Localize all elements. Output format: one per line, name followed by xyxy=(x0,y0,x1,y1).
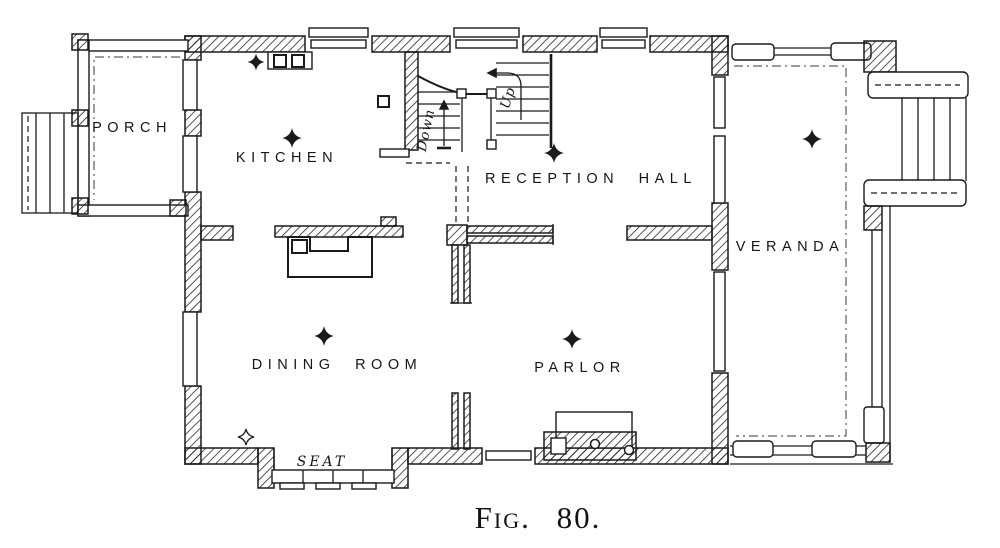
veranda: VERANDA xyxy=(730,41,968,464)
window xyxy=(486,451,531,460)
cased-opening-walls xyxy=(450,166,472,449)
wall-stub xyxy=(627,226,712,240)
newel-post xyxy=(457,89,466,98)
newel-post xyxy=(487,140,496,149)
veranda-post xyxy=(812,441,856,457)
firebox xyxy=(551,438,566,454)
window xyxy=(183,60,197,110)
room-label-kitchen: KITCHEN xyxy=(236,150,338,166)
bay-sill xyxy=(280,483,304,489)
fireplace xyxy=(544,412,636,460)
newel-light-icon xyxy=(544,143,564,163)
porch-steps xyxy=(22,113,78,213)
ceiling-light-icon xyxy=(282,128,302,148)
wall-left xyxy=(185,110,201,136)
ceiling-light-icon xyxy=(248,54,265,71)
wall-stub xyxy=(201,226,233,240)
veranda-door xyxy=(714,136,725,203)
room-label-veranda: VERANDA xyxy=(736,239,845,255)
wall-bottom xyxy=(185,448,258,464)
door-leaf xyxy=(380,149,409,157)
floor-plan-drawing: PORCH VERANDA xyxy=(0,0,1000,548)
stair-balustrade xyxy=(457,89,496,152)
interior-walls xyxy=(201,52,712,449)
window xyxy=(714,272,725,371)
figure-caption: Fig. 80. xyxy=(475,500,602,535)
wall-reception-parlor xyxy=(447,224,553,245)
room-label-porch: PORCH xyxy=(92,120,172,136)
sideboard xyxy=(275,217,403,277)
wall-top xyxy=(185,36,305,52)
figure-80-floor-plan: PORCH VERANDA xyxy=(0,0,1000,548)
wall-right xyxy=(712,36,728,75)
porch-post xyxy=(72,198,88,214)
porch-rail-left xyxy=(78,40,89,216)
fireplace-fixture xyxy=(591,440,600,449)
veranda-corner xyxy=(864,41,896,72)
veranda-corner xyxy=(866,443,890,462)
room-label-reception-hall: RECEPTION HALL xyxy=(485,171,697,187)
ceiling-light-icon xyxy=(802,129,822,149)
veranda-rail-block xyxy=(864,206,882,230)
veranda-steps xyxy=(864,72,968,206)
wall-bottom xyxy=(408,448,482,464)
wall-right xyxy=(712,203,728,270)
bay-sill xyxy=(316,483,340,489)
veranda-post xyxy=(732,44,774,60)
wall-top xyxy=(372,36,450,52)
window xyxy=(600,28,647,48)
kitchen-chimney xyxy=(268,52,312,69)
window xyxy=(309,28,368,48)
wall-light-icon xyxy=(238,429,254,445)
room-label-dining-room: DINING ROOM xyxy=(252,357,422,373)
staircase: Down Up xyxy=(414,54,564,163)
veranda-post xyxy=(733,441,773,457)
ceiling-light-icon xyxy=(562,329,582,349)
window xyxy=(183,312,197,386)
room-label-parlor: PARLOR xyxy=(534,360,626,376)
newel-post xyxy=(487,89,496,98)
window-seat-bay: SEAT xyxy=(258,448,408,489)
wall-top xyxy=(523,36,597,52)
flue-box xyxy=(378,96,389,107)
porch: PORCH xyxy=(22,34,188,216)
fireplace-fixture xyxy=(625,446,634,455)
veranda-door xyxy=(714,77,725,128)
porch-rail-top xyxy=(78,40,188,51)
ceiling-light-icon xyxy=(314,326,334,346)
window xyxy=(183,136,197,192)
seat-label: SEAT xyxy=(297,454,348,470)
veranda-post xyxy=(864,407,884,443)
porch-post xyxy=(170,200,186,216)
stair-up-label: Up xyxy=(497,85,519,111)
bay-sill xyxy=(352,483,376,489)
porch-post xyxy=(72,34,88,50)
window xyxy=(454,28,519,48)
